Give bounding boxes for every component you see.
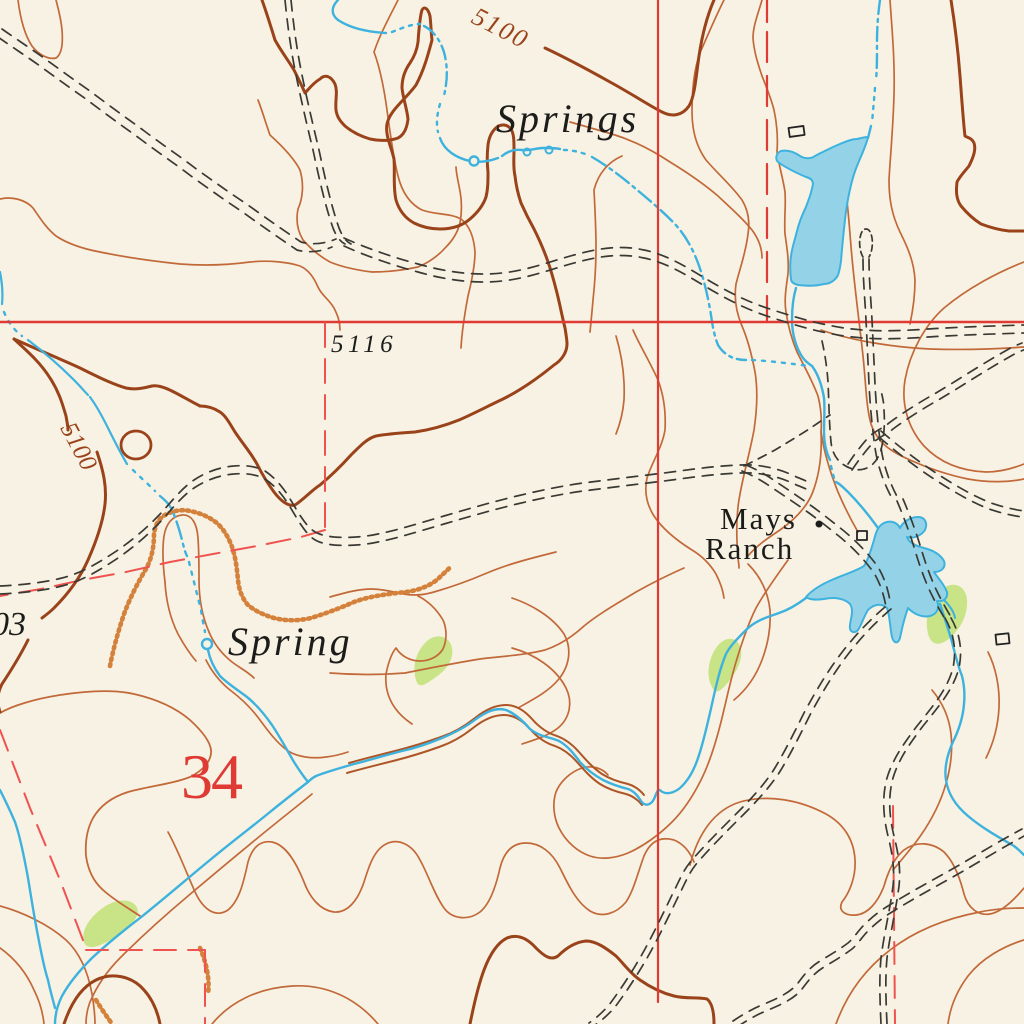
svg-text:Spring: Spring — [228, 619, 353, 664]
svg-text:Springs: Springs — [496, 96, 639, 141]
svg-text:03: 03 — [0, 606, 26, 643]
svg-text:34: 34 — [181, 741, 242, 812]
svg-text:5116: 5116 — [331, 331, 397, 358]
svg-text:Ranch: Ranch — [705, 531, 794, 566]
